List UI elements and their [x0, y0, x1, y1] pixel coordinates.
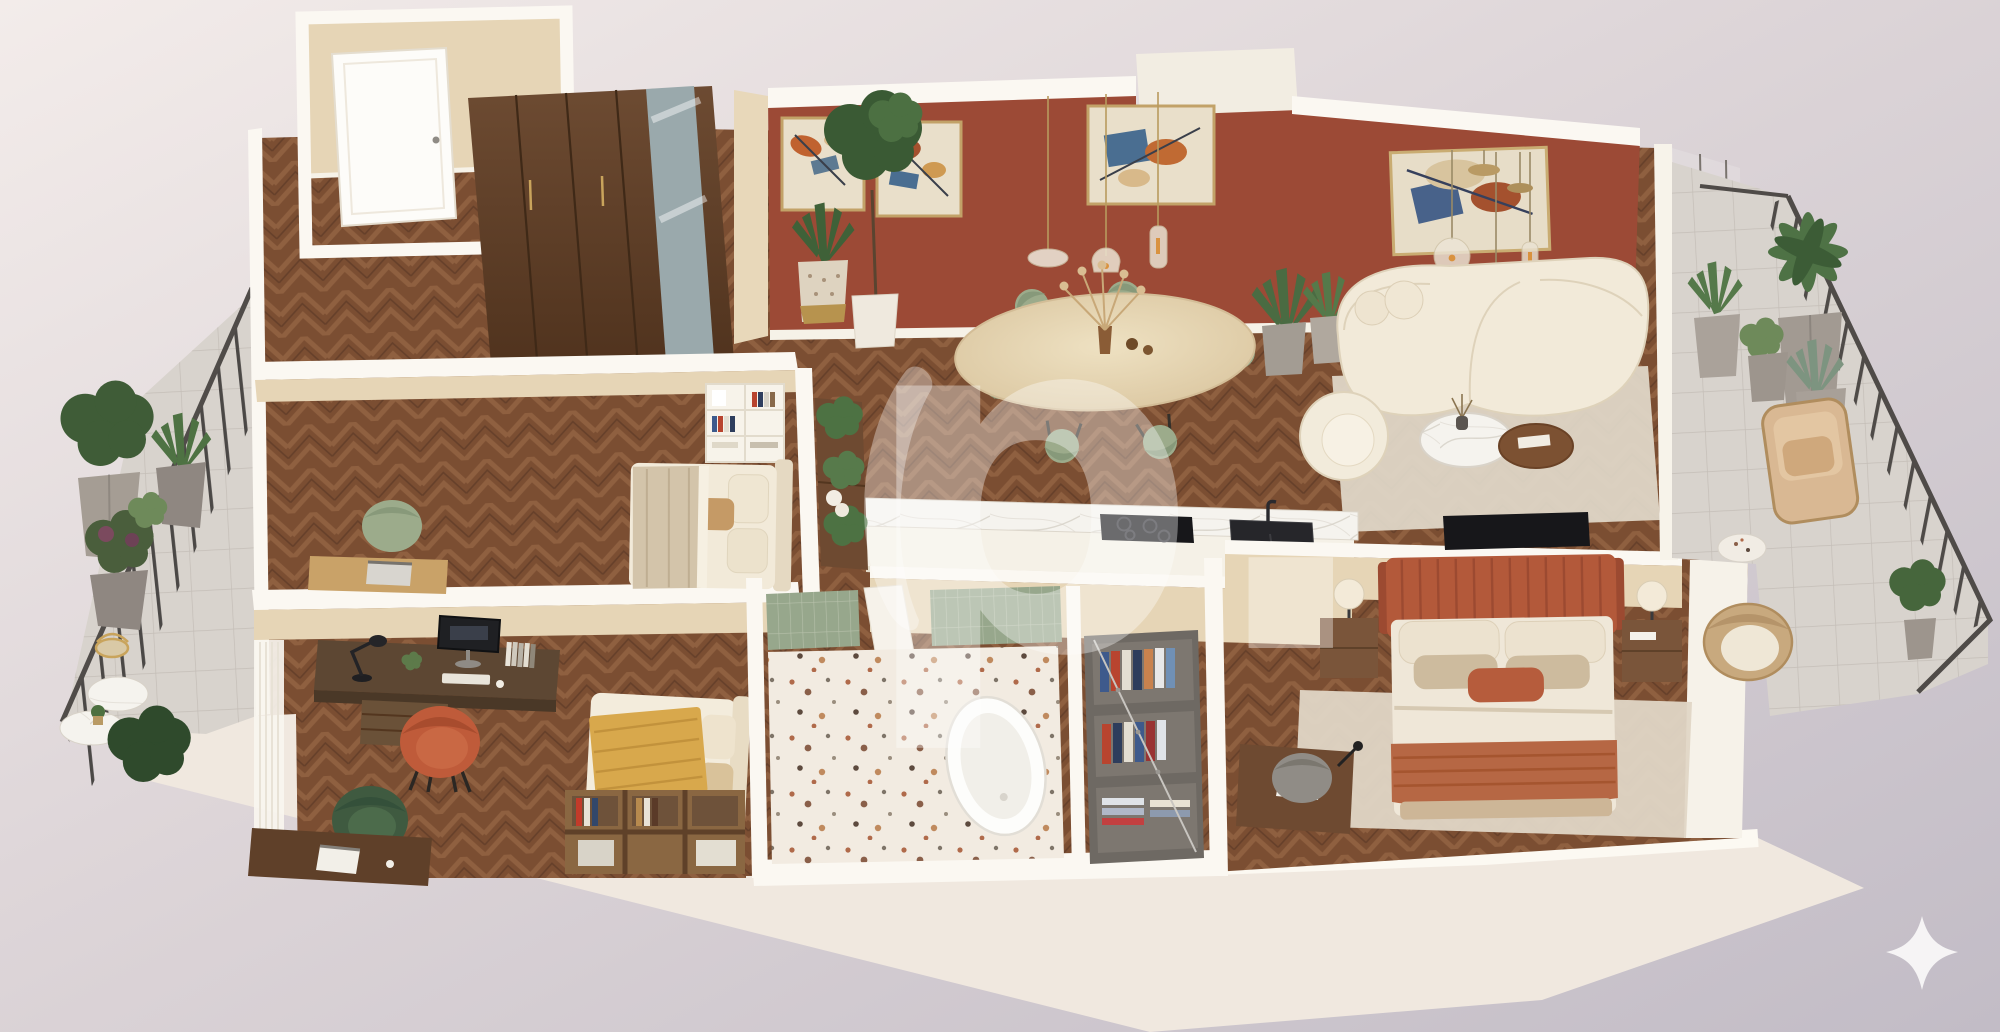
- laptop-sideboard: [248, 828, 432, 886]
- bolster-pillow-2: [1385, 281, 1423, 319]
- cubby-bookshelf: [565, 790, 745, 874]
- bed-base: [1400, 798, 1612, 820]
- sheer-curtains: [254, 640, 284, 832]
- door-handle: [433, 137, 440, 144]
- master-window-wall: [1684, 560, 1748, 838]
- green-tile-wall-1: [766, 590, 860, 650]
- brass-disc: [1468, 164, 1500, 176]
- shelf-unit: [706, 384, 784, 462]
- rattan-armchair: [1704, 604, 1792, 680]
- keyboard: [442, 673, 490, 685]
- screenshot-root: p.: [0, 0, 2000, 1032]
- abstract-art-3: [1088, 106, 1214, 204]
- table-lamp-2: [1637, 581, 1667, 611]
- tan-blanket: [631, 465, 703, 590]
- master-bed: [1378, 554, 1629, 820]
- rust-lumbar-pillow: [1468, 667, 1545, 702]
- rust-throw: [1391, 740, 1618, 807]
- abstract-art-4: [1390, 147, 1549, 254]
- rattan-lounge-chair: [1760, 397, 1860, 526]
- boucle-sofa: [1337, 258, 1648, 416]
- basket-gold-band: [800, 304, 846, 324]
- gold-chair: [96, 639, 128, 657]
- laptop: [366, 562, 412, 586]
- watermark-glyph: p.: [856, 203, 1382, 762]
- guest-bed: [629, 457, 793, 592]
- terrazzo-side-table: [1718, 534, 1766, 562]
- tv: [1443, 512, 1590, 550]
- table-vase-dark: [1456, 416, 1468, 430]
- floorplan-3d-render: p.: [0, 0, 2000, 1032]
- mouse: [496, 680, 504, 688]
- lounge-pillow: [1781, 435, 1836, 478]
- desk-books: [505, 642, 536, 668]
- books-stack: [1630, 632, 1656, 640]
- brass-disc-2: [1507, 183, 1533, 193]
- watermark: p.: [856, 203, 1382, 762]
